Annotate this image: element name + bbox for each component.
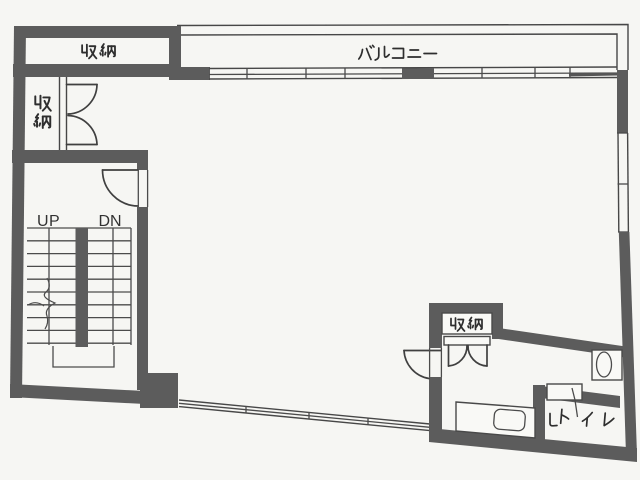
- svg-text:UP: UP: [37, 213, 60, 230]
- svg-text:DN: DN: [99, 213, 122, 230]
